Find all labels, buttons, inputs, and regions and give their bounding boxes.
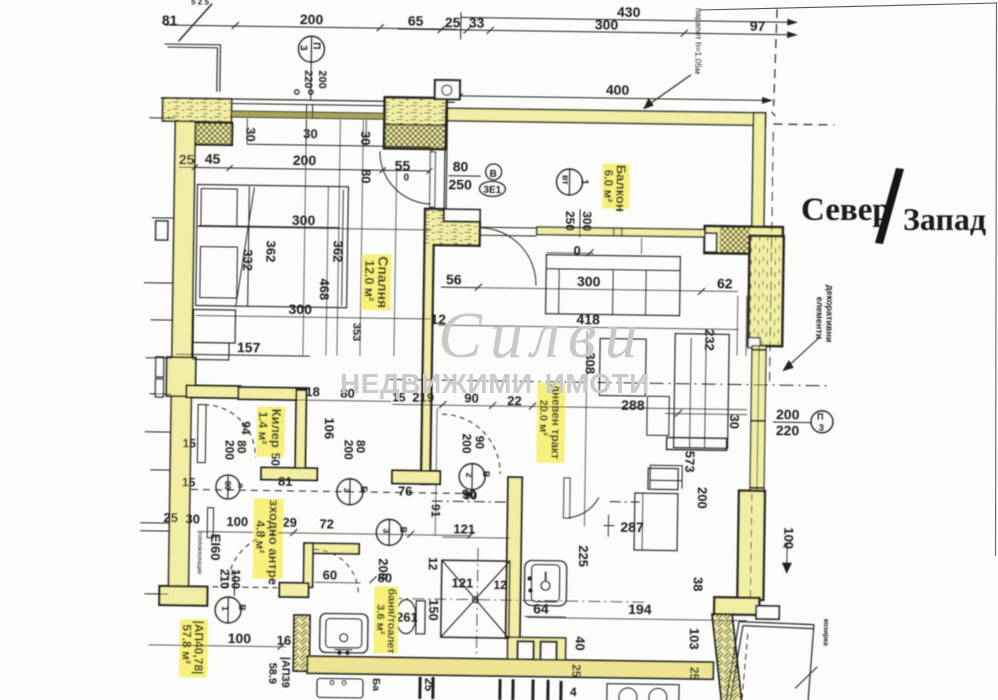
svg-text:|АП39: |АП39 [279,657,291,688]
svg-text:парапет h=1.05м: парапет h=1.05м [693,8,704,74]
svg-text:18: 18 [305,384,320,399]
svg-text:29: 29 [282,515,297,530]
svg-text:5 2 5: 5 2 5 [191,0,209,7]
svg-text:1: 1 [220,606,230,611]
svg-text:100: 100 [226,514,248,529]
svg-text:400: 400 [606,82,630,98]
svg-text:4.8 м²: 4.8 м² [253,520,267,553]
svg-text:Ба: Ба [370,678,381,691]
svg-text:1: 1 [578,179,589,185]
svg-text:103: 103 [687,628,702,650]
svg-text:декоративни: декоративни [824,285,835,343]
svg-text:225: 225 [576,545,591,567]
svg-text:2: 2 [464,472,474,477]
svg-text:12: 12 [493,578,507,592]
svg-text:80: 80 [358,169,373,184]
svg-text:16: 16 [277,633,292,648]
svg-text:430: 430 [617,4,641,20]
svg-text:3.6 м²: 3.6 м² [374,604,386,635]
svg-text:вт: вт [560,175,570,186]
svg-text:80: 80 [453,158,469,174]
svg-text:200: 200 [695,487,710,509]
svg-text:76: 76 [398,484,413,499]
svg-text:15: 15 [182,475,196,489]
svg-text:194: 194 [628,601,652,617]
svg-text:573: 573 [682,451,697,473]
svg-text:57.8 м²: 57.8 м² [179,624,194,664]
svg-text:П: П [310,42,321,49]
svg-text:81: 81 [278,474,293,489]
svg-text:30: 30 [185,511,200,526]
svg-text:121: 121 [453,521,475,536]
svg-text:25: 25 [569,664,583,678]
svg-text:20.0 м²: 20.0 м² [537,400,550,437]
svg-text:81: 81 [162,12,178,28]
svg-text:65: 65 [408,13,424,29]
svg-text:210: 210 [217,569,231,590]
svg-text:30: 30 [727,414,742,429]
svg-text:56: 56 [446,271,462,287]
svg-text:топлоизолация: топлоизолация [196,532,203,574]
svg-text:12: 12 [426,557,440,571]
svg-text:45: 45 [205,151,221,167]
svg-text:Запад: Запад [903,201,986,237]
svg-text:300: 300 [292,212,316,228]
svg-text:П: П [817,412,824,422]
svg-text:220: 220 [776,422,800,438]
svg-text:НЕДВИЖИМИ ИМОТИ: НЕДВИЖИМИ ИМОТИ [340,368,650,399]
svg-text:козирка: козирка [822,619,829,646]
svg-text:353: 353 [350,323,362,342]
svg-text:Силви: Силви [438,299,645,372]
svg-text:33: 33 [469,15,485,31]
svg-text:106: 106 [322,417,337,439]
svg-text:В: В [237,604,247,611]
svg-text:30: 30 [358,131,373,146]
svg-text:232: 232 [702,329,717,351]
svg-text:91: 91 [429,504,443,518]
svg-text:300: 300 [577,273,601,289]
svg-text:300: 300 [580,211,594,232]
svg-text:332: 332 [240,249,255,271]
svg-text:200: 200 [776,406,800,422]
svg-text:4: 4 [570,685,577,699]
svg-text:50: 50 [268,453,282,467]
svg-text:60: 60 [323,567,338,582]
svg-text:В: В [398,527,408,534]
svg-text:6.0 м²: 6.0 м² [601,169,615,202]
svg-text:300: 300 [595,16,619,32]
svg-text:90: 90 [464,488,478,502]
svg-text:80: 80 [234,440,248,454]
svg-text:Север: Север [801,192,891,228]
svg-text:25: 25 [163,510,178,525]
svg-text:п: п [236,483,245,488]
svg-text:287: 287 [620,519,644,535]
svg-text:Б: Б [359,486,369,493]
svg-text:25: 25 [445,14,461,30]
svg-text:200: 200 [459,433,473,454]
svg-text:38: 38 [690,577,705,592]
svg-text:0: 0 [573,243,580,258]
svg-text:200: 200 [376,558,391,580]
svg-text:58.9: 58.9 [266,663,278,685]
svg-text:3: 3 [342,488,352,493]
svg-text:362: 362 [263,240,278,262]
svg-text:40: 40 [573,636,588,651]
svg-text:80: 80 [223,481,232,491]
svg-text:362: 362 [330,240,345,262]
svg-text:30: 30 [303,126,318,141]
svg-text:В: В [490,169,497,180]
svg-text:250: 250 [448,176,472,192]
svg-text:288: 288 [621,397,645,413]
svg-text:90: 90 [473,436,487,450]
svg-text:3Е1: 3Е1 [483,185,501,196]
svg-text:1.4 м²: 1.4 м² [256,411,270,444]
svg-text:15: 15 [182,436,196,450]
svg-text:0: 0 [403,173,409,184]
svg-text:В: В [481,471,491,478]
svg-text:94: 94 [239,421,253,435]
svg-text:261: 261 [396,609,418,624]
svg-text:72: 72 [319,516,334,531]
svg-text:12.0 м²: 12.0 м² [362,260,377,301]
svg-text:62: 62 [717,275,733,291]
svg-text:200: 200 [316,70,328,89]
svg-text:3: 3 [381,528,391,533]
svg-text:елементи: елементи [814,297,825,340]
svg-text:157: 157 [237,339,261,355]
svg-text:97: 97 [750,18,766,34]
svg-text:100: 100 [781,527,796,549]
svg-text:121: 121 [451,575,473,590]
svg-text:150: 150 [426,599,441,621]
svg-text:200: 200 [293,152,317,168]
svg-text:25: 25 [687,667,701,681]
svg-text:250: 250 [563,211,577,232]
svg-text:80: 80 [353,440,367,454]
svg-text:64: 64 [533,601,549,617]
svg-text:300: 300 [288,301,312,317]
svg-text:25: 25 [179,151,195,167]
svg-text:468: 468 [317,278,332,300]
svg-text:200: 200 [300,11,324,27]
svg-text:30: 30 [243,127,258,142]
svg-text:55: 55 [395,157,411,173]
svg-text:220: 220 [302,70,314,89]
svg-text:3: 3 [819,423,824,433]
svg-text:100: 100 [228,630,252,646]
svg-text:3: 3 [297,45,308,51]
